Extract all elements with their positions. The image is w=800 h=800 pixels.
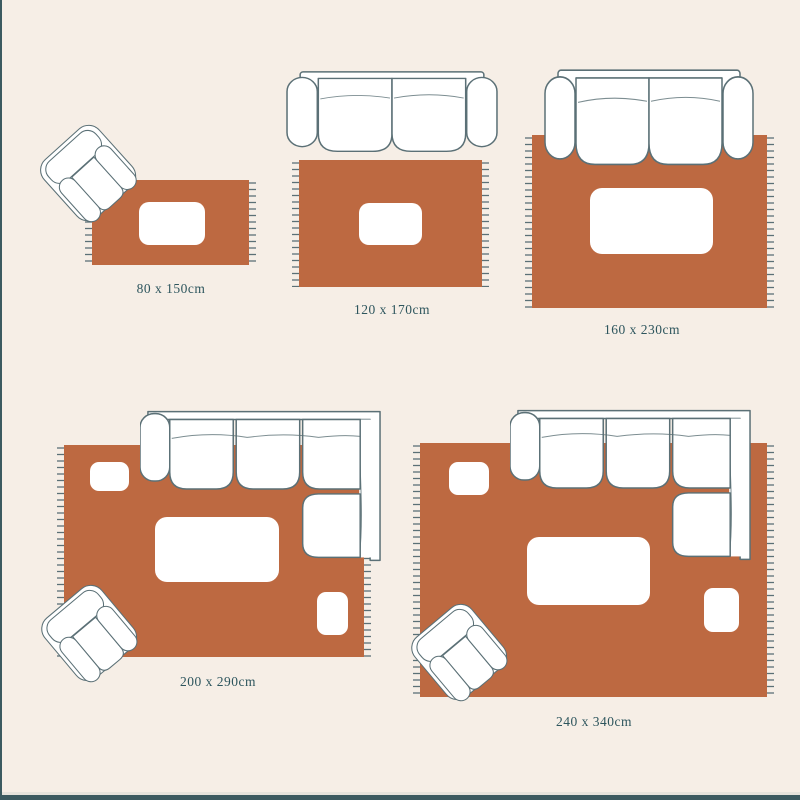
sofa-icon (285, 70, 499, 156)
rug-120x170 (291, 160, 490, 287)
size-label: 120 x 170cm (312, 302, 472, 318)
coffee-table (590, 188, 713, 254)
figure-rug-240x340: 240 x 340cm (402, 400, 782, 740)
bottom-edge-highlight (2, 792, 800, 795)
fringe-right (767, 135, 774, 308)
fringe-right (249, 180, 256, 265)
side-table (449, 462, 489, 495)
size-label: 160 x 230cm (562, 322, 722, 338)
side-table (704, 588, 739, 632)
size-label: 240 x 340cm (514, 714, 674, 730)
figure-rug-200x290: 200 x 290cm (32, 400, 392, 700)
coffee-table (359, 203, 422, 245)
fringe-left (525, 135, 532, 308)
figure-rug-160x230: 160 x 230cm (512, 60, 797, 345)
side-table (317, 592, 348, 635)
fringe-right (482, 160, 489, 287)
rug-size-guide-diagram: 80 x 150cm 120 x 170cm 160 x 230cm (0, 0, 800, 800)
size-label: 80 x 150cm (91, 281, 251, 297)
coffee-table (139, 202, 205, 245)
figure-rug-120x170: 120 x 170cm (282, 60, 512, 325)
fringe-right (767, 443, 774, 697)
sectional-sofa-icon (510, 407, 754, 565)
fringe-left (292, 160, 299, 287)
sectional-sofa-icon (140, 408, 384, 566)
side-table (90, 462, 129, 491)
sofa-icon (543, 68, 755, 170)
figure-rug-80x150: 80 x 150cm (32, 100, 282, 305)
size-label: 200 x 290cm (138, 674, 298, 690)
